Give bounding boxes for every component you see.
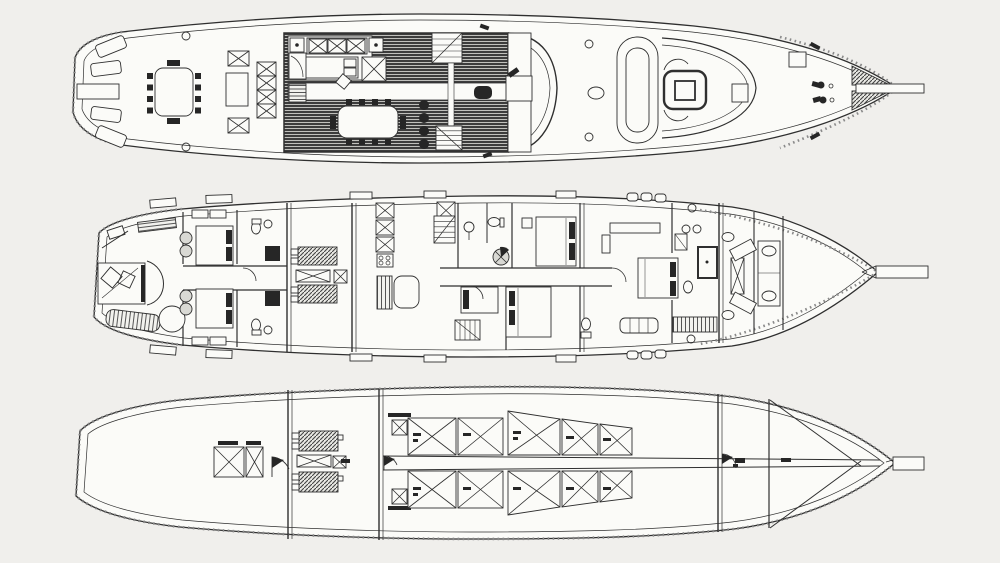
pillow <box>509 310 515 325</box>
vip-locker <box>602 235 610 253</box>
generator <box>334 270 347 283</box>
tank-label-mark <box>388 506 411 510</box>
chair <box>195 96 201 102</box>
pillow <box>226 293 232 307</box>
bowsprit <box>856 84 924 93</box>
laundry <box>377 254 393 267</box>
label-mark <box>341 459 350 463</box>
pillow <box>463 290 469 309</box>
pillow <box>670 281 676 296</box>
chair <box>147 96 153 102</box>
bar-stool <box>419 113 429 123</box>
engine-mount <box>292 474 299 480</box>
basin <box>180 232 192 244</box>
knob <box>706 261 709 264</box>
side-deck-box <box>350 192 372 199</box>
tank-label-mark <box>413 433 421 436</box>
engine-mount <box>291 249 298 255</box>
crew-locker <box>731 258 744 294</box>
tank-label-mark <box>388 413 411 417</box>
tender <box>617 37 658 143</box>
side-deck-box <box>641 193 652 201</box>
bowsprit <box>876 266 928 278</box>
yacht-deck-plans-drawing <box>0 0 1000 563</box>
chair <box>372 139 378 145</box>
pillow <box>226 247 232 261</box>
engine-mount <box>292 443 299 449</box>
tank-label-mark <box>566 487 574 490</box>
tank-label-mark <box>513 437 518 440</box>
lower-deck-plan-hull-outer <box>76 387 895 539</box>
sink <box>682 225 690 233</box>
chair <box>195 108 201 114</box>
tank <box>508 471 560 515</box>
closet <box>210 337 226 345</box>
fridge-unit <box>376 203 394 218</box>
stern-bench <box>77 84 119 99</box>
fore-hatch <box>789 52 806 67</box>
tank-label-mark <box>603 438 611 441</box>
pillow <box>569 243 575 260</box>
vanity <box>581 332 591 338</box>
tank-label-mark <box>603 487 611 490</box>
tank <box>392 420 407 435</box>
chair <box>167 60 180 66</box>
chair <box>147 73 153 79</box>
pillow <box>226 310 232 324</box>
crew-steps <box>673 317 717 332</box>
tank-label-mark <box>463 487 471 490</box>
fridge-unit <box>376 237 394 252</box>
bar-stool <box>419 100 429 110</box>
chair <box>346 99 352 105</box>
plank-seam <box>448 63 454 126</box>
headboard <box>141 265 145 302</box>
sink <box>344 59 356 67</box>
main-deck-plan <box>94 191 928 362</box>
seat-step <box>732 84 748 102</box>
tank <box>458 418 503 455</box>
side-deck-box <box>627 193 638 201</box>
tank-label-mark <box>413 493 418 496</box>
sink <box>693 225 701 233</box>
pillow <box>509 291 515 306</box>
engine-mount <box>338 435 343 440</box>
chair <box>385 139 391 145</box>
engine <box>299 431 338 451</box>
nightstand <box>522 218 532 228</box>
pillow <box>569 222 575 239</box>
fridge-unit <box>376 220 394 235</box>
chair <box>147 85 153 91</box>
cleat <box>810 132 821 140</box>
engine <box>298 285 337 303</box>
engine-mount <box>338 476 343 481</box>
label-mark <box>781 458 791 462</box>
side-deck-box <box>627 351 638 359</box>
chair <box>167 118 180 124</box>
closet <box>192 210 208 218</box>
chair <box>147 108 153 114</box>
sink <box>264 220 272 228</box>
engine <box>299 472 338 492</box>
tank <box>408 418 456 455</box>
toilet <box>582 318 591 330</box>
side-deck-box <box>150 345 177 355</box>
toilet-tank <box>252 330 261 335</box>
tank-label-mark <box>218 441 238 445</box>
side-deck-box <box>655 350 666 358</box>
tank <box>392 489 407 504</box>
tank-label-mark <box>413 487 421 490</box>
helm-seat <box>474 86 492 99</box>
pillow <box>226 230 232 244</box>
chair <box>400 116 406 129</box>
deck-locker <box>226 73 248 106</box>
toilet <box>252 319 261 331</box>
sink <box>264 326 272 334</box>
basin <box>722 311 734 320</box>
tank <box>600 471 632 502</box>
toilet-tank <box>252 219 261 224</box>
upper-deck-plan <box>73 14 924 163</box>
sink <box>464 222 474 232</box>
burner <box>309 39 327 53</box>
deck-plans-page <box>0 0 1000 563</box>
side-deck-box <box>350 354 372 361</box>
saloon-table <box>338 106 398 138</box>
tank-label-mark <box>413 439 418 442</box>
sunpad <box>257 104 276 118</box>
chair <box>385 99 391 105</box>
generator <box>296 270 330 282</box>
side-deck-box <box>424 355 446 362</box>
sink <box>344 68 356 76</box>
chair <box>330 116 336 129</box>
burner <box>328 39 346 53</box>
crew-bunks <box>758 241 780 306</box>
side-deck-box <box>206 350 232 359</box>
tank-label-mark <box>246 441 261 445</box>
chair <box>359 139 365 145</box>
helm-console <box>506 76 532 101</box>
pillow <box>670 262 676 277</box>
crew-bench <box>377 276 392 309</box>
side-deck-box <box>150 198 177 208</box>
toilet-tank <box>500 218 504 227</box>
side-deck-box <box>206 195 232 204</box>
sunpad <box>257 90 276 104</box>
master-bed <box>98 263 145 304</box>
sunpad <box>257 62 276 76</box>
chair <box>372 99 378 105</box>
deck-box <box>228 51 249 66</box>
tank <box>214 447 244 477</box>
side-deck-box <box>641 351 652 359</box>
dumbwaiter <box>362 57 386 81</box>
bowsprit <box>893 457 924 470</box>
chair <box>195 85 201 91</box>
basin <box>180 245 192 257</box>
deck-box <box>228 118 249 133</box>
closet <box>192 337 208 345</box>
chair <box>359 99 365 105</box>
lower-deck-plan <box>76 387 924 540</box>
toilet <box>488 218 500 227</box>
engine-mount <box>291 287 298 293</box>
side-deck-box <box>655 194 666 202</box>
basin <box>180 290 192 302</box>
crew-table <box>394 276 419 308</box>
knob <box>295 43 299 47</box>
burner <box>347 39 365 53</box>
engine-mount <box>291 258 298 264</box>
chair <box>346 139 352 145</box>
tank-label-mark <box>513 431 521 434</box>
aft-deck-table <box>155 68 193 116</box>
side-deck-box <box>424 191 446 198</box>
bar-stool <box>419 126 429 136</box>
basin <box>180 303 192 315</box>
chair <box>195 73 201 79</box>
bar-stool <box>419 139 429 149</box>
side-deck-box <box>556 355 576 362</box>
fridge <box>289 53 306 79</box>
sunpad <box>257 76 276 90</box>
engine-mount <box>292 433 299 439</box>
closet <box>210 210 226 218</box>
vent-louver <box>289 84 306 102</box>
engine-mount <box>292 484 299 490</box>
tank-label-mark <box>463 433 471 436</box>
engine <box>298 247 337 265</box>
gearbox <box>297 455 331 467</box>
label-mark <box>735 458 745 463</box>
side-deck-box <box>556 191 576 198</box>
toilet <box>684 281 693 293</box>
tank <box>246 447 263 477</box>
tank-label-mark <box>566 436 574 439</box>
basin <box>722 233 734 242</box>
shower <box>265 246 280 261</box>
vip-cabinet <box>610 223 660 233</box>
shower <box>265 291 280 306</box>
knob <box>374 43 378 47</box>
tank-label-mark <box>513 487 521 490</box>
engine-mount <box>291 296 298 302</box>
